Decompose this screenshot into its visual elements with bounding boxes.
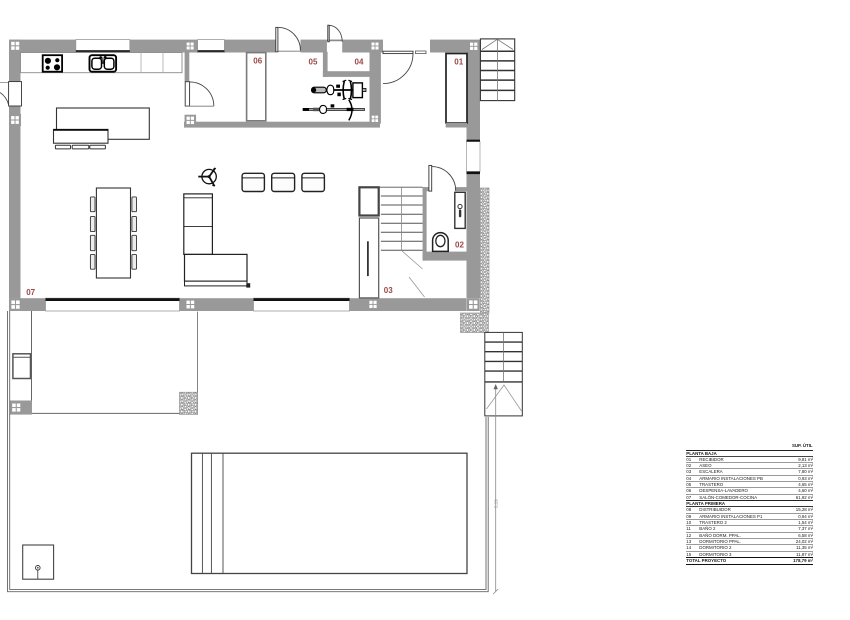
svg-text:01: 01 bbox=[454, 58, 463, 67]
svg-text:06: 06 bbox=[253, 57, 262, 66]
svg-text:04: 04 bbox=[355, 58, 364, 67]
svg-text:5,19: 5,19 bbox=[494, 499, 499, 508]
svg-text:07: 07 bbox=[26, 288, 35, 297]
svg-text:03: 03 bbox=[384, 286, 393, 295]
svg-text:02: 02 bbox=[455, 241, 464, 250]
svg-text:05: 05 bbox=[309, 58, 318, 67]
